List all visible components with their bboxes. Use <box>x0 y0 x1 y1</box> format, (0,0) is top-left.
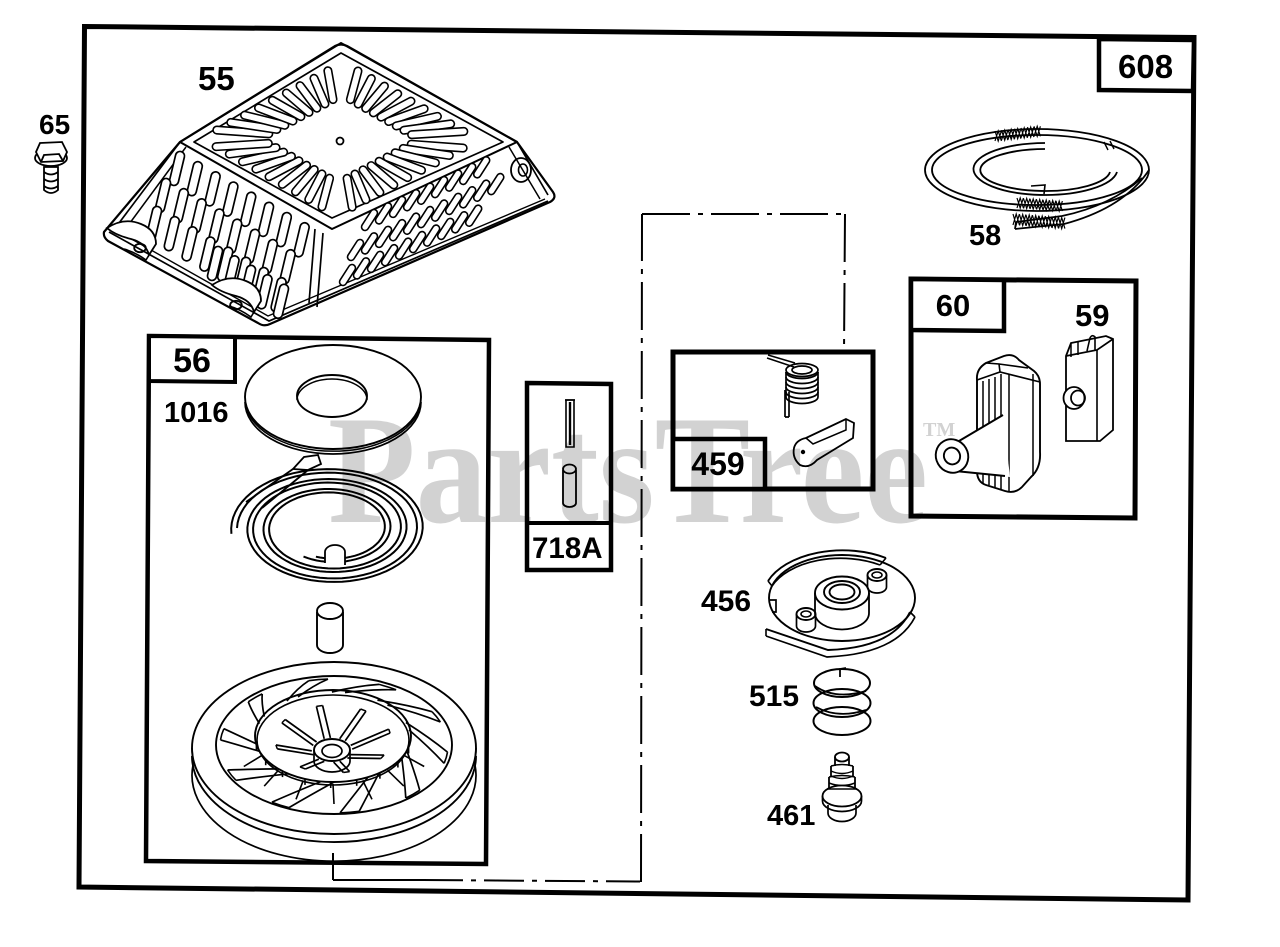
svg-text:59: 59 <box>1075 298 1109 333</box>
svg-text:60: 60 <box>936 288 970 323</box>
svg-text:461: 461 <box>767 800 815 832</box>
svg-text:55: 55 <box>198 60 235 97</box>
svg-text:58: 58 <box>969 220 1001 252</box>
svg-text:1016: 1016 <box>164 397 229 429</box>
svg-text:PartsTree: PartsTree <box>328 384 928 556</box>
svg-text:TM: TM <box>923 419 955 441</box>
svg-text:515: 515 <box>749 680 799 713</box>
svg-text:65: 65 <box>39 109 70 140</box>
svg-text:456: 456 <box>701 585 751 618</box>
svg-text:56: 56 <box>173 342 211 380</box>
svg-text:608: 608 <box>1118 48 1173 85</box>
